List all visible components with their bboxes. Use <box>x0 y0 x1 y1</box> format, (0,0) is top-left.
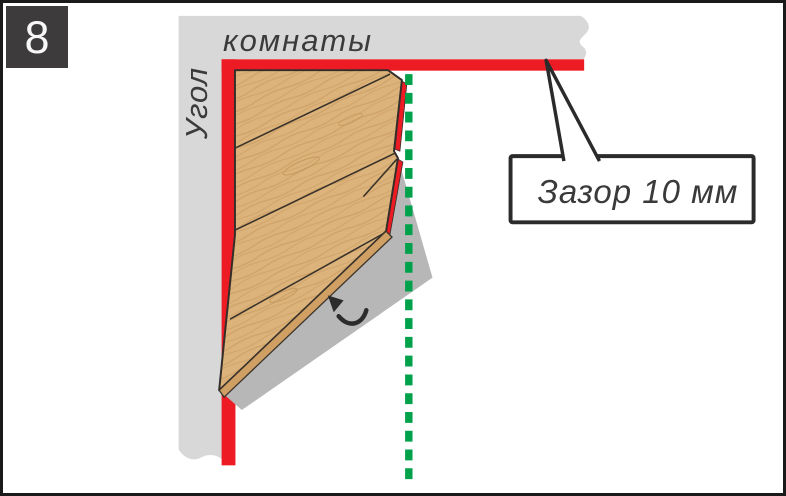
gap-callout-label: Зазор 10 мм <box>515 158 761 225</box>
wall-label-ugol: Угол <box>177 57 217 149</box>
expansion-gap-top <box>222 59 585 70</box>
step-number: 8 <box>24 15 49 60</box>
wall-label-komnaty: комнаты <box>223 23 393 59</box>
installation-diagram <box>3 3 783 493</box>
step-number-badge: 8 <box>6 6 68 68</box>
diagram-frame: 8 комнаты Угол Зазор 10 мм <box>0 0 786 496</box>
callout-pointer <box>546 60 599 161</box>
